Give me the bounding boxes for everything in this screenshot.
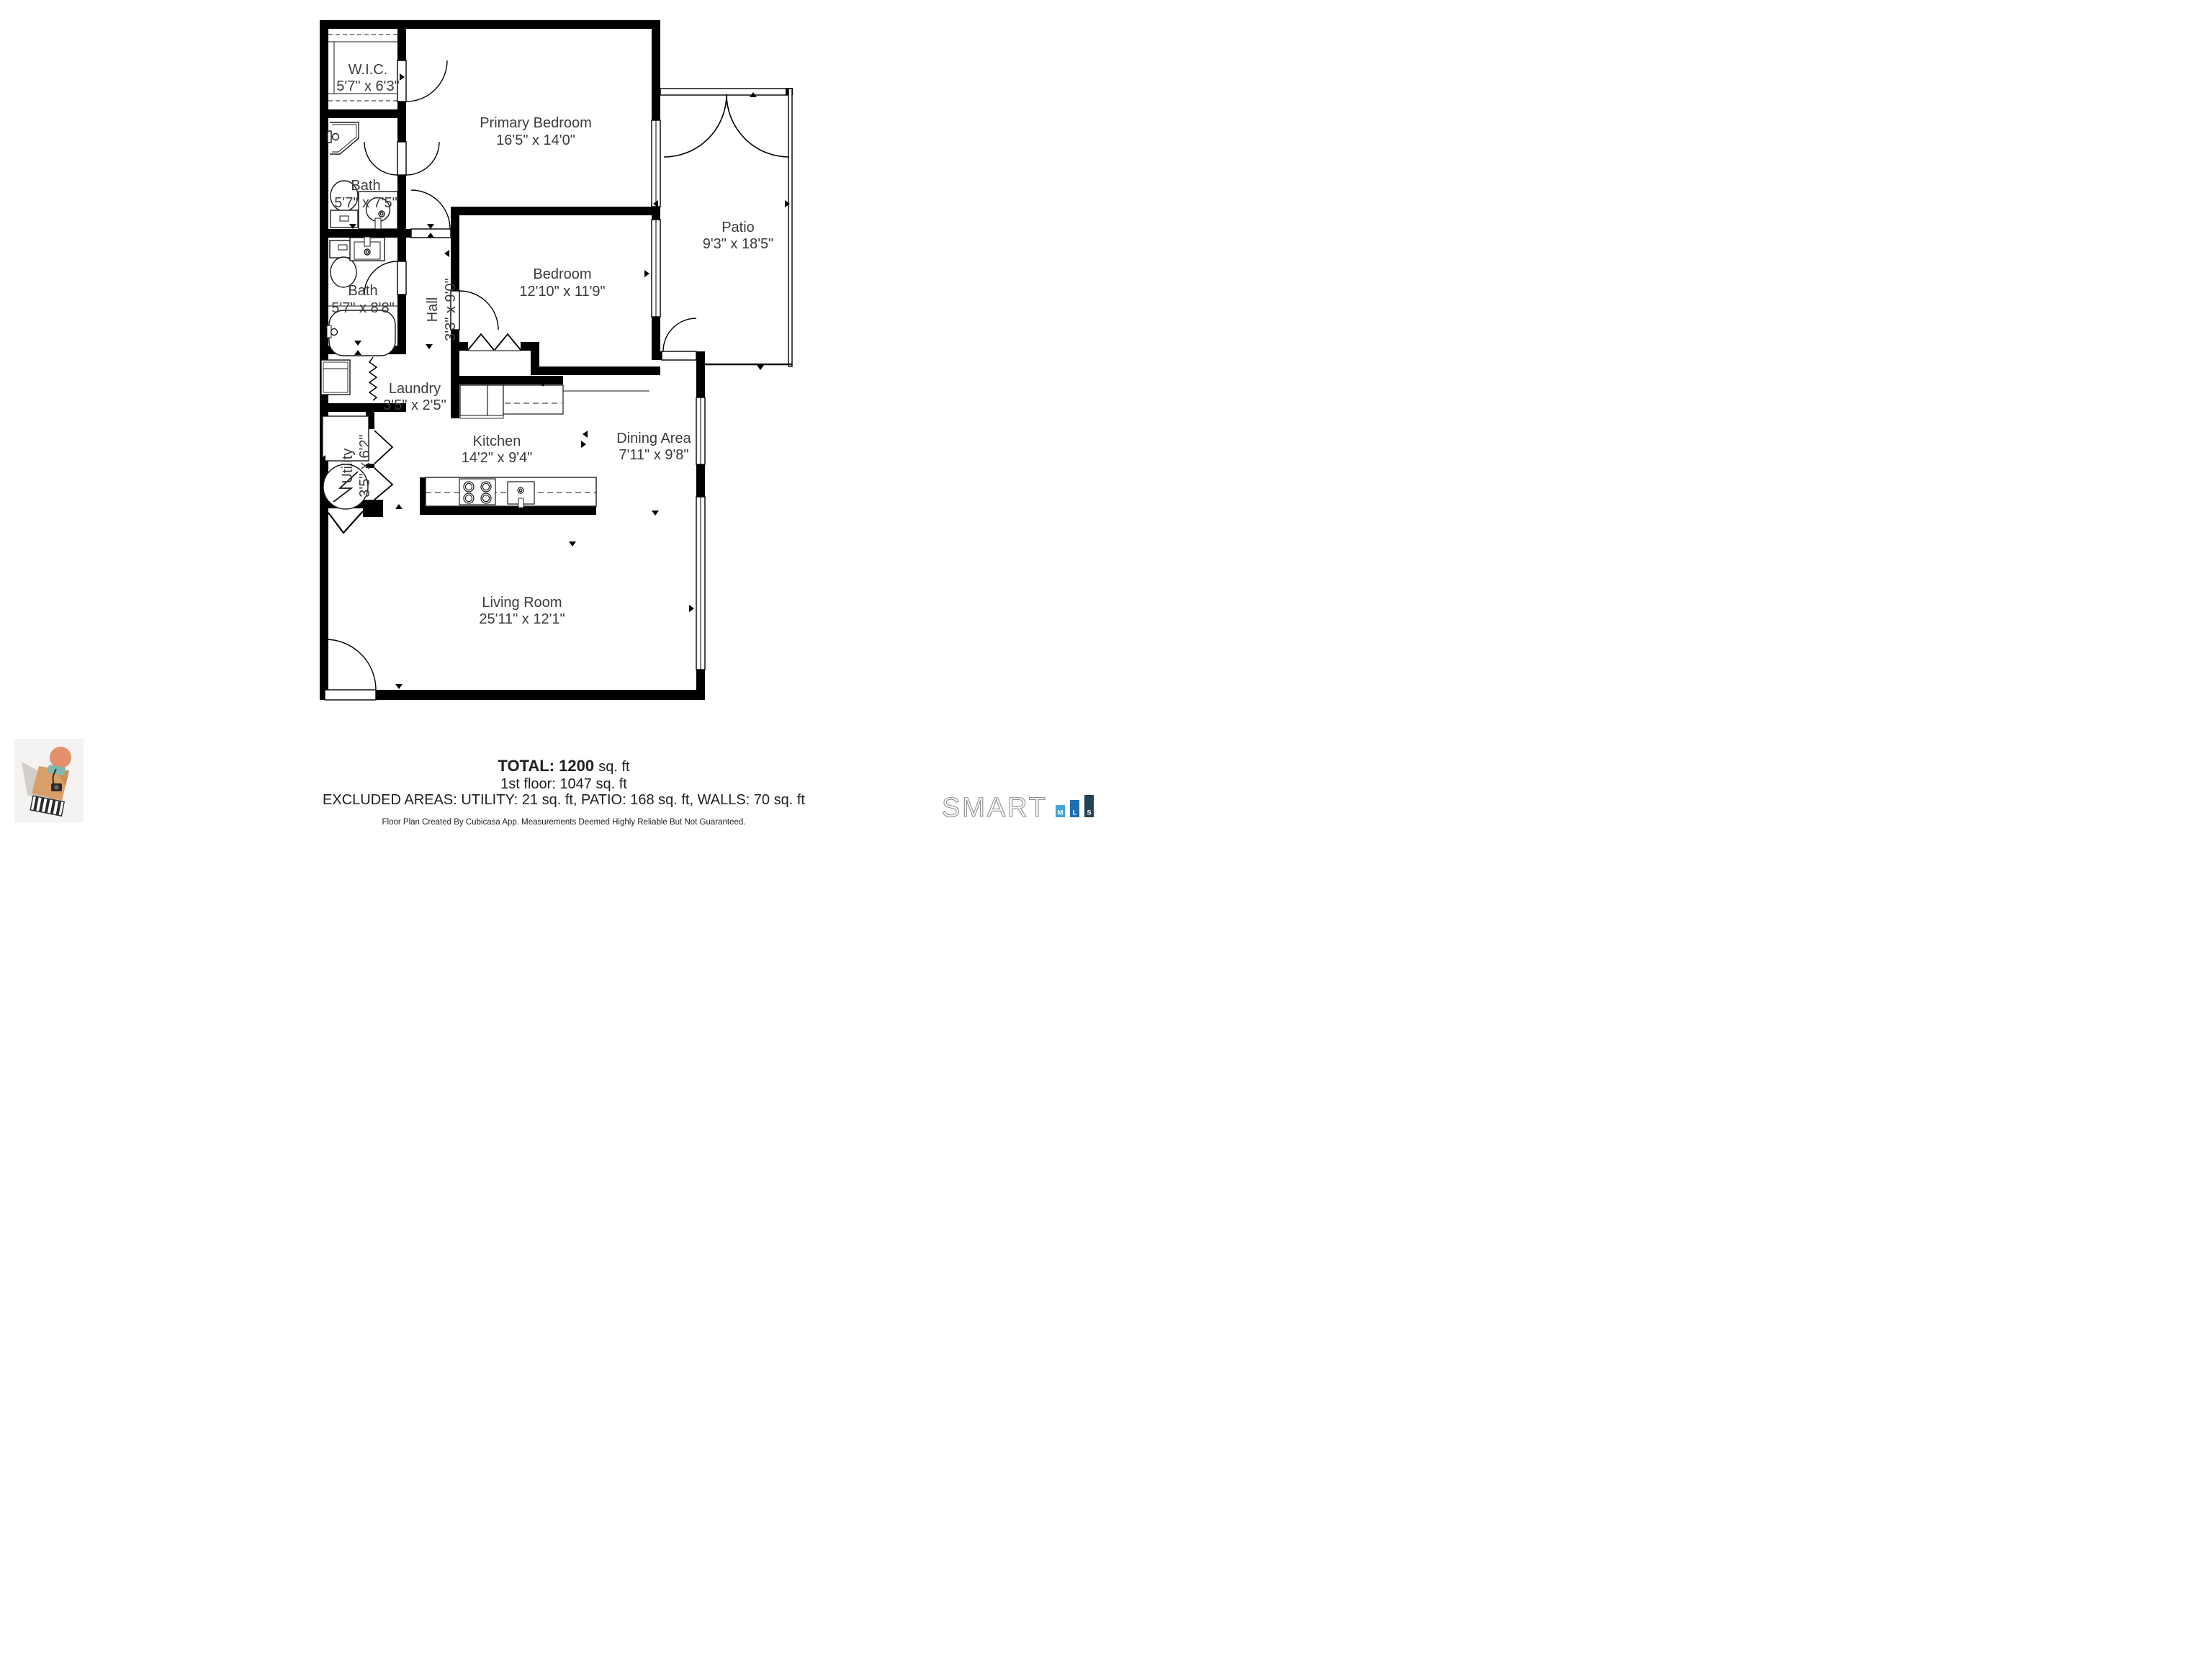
room-label-dining: Dining Area 7'11" x 9'8" <box>616 431 691 463</box>
kitchen-sink-icon <box>508 482 534 508</box>
door-closet-bifold-icon <box>468 334 521 351</box>
cubicasa-logo <box>14 739 84 824</box>
washer-icon <box>321 360 350 395</box>
smart-wordmark: SMART <box>942 793 1048 823</box>
window-primary-bedroom <box>652 120 660 207</box>
window-living <box>696 497 705 670</box>
room-label-kitchen: Kitchen 14'2" x 9'4" <box>462 433 533 466</box>
door-laundry-accordion-icon <box>369 357 377 400</box>
total-label: TOTAL: <box>498 757 554 775</box>
room-label-living: Living Room 25'11" x 12'1" <box>479 595 565 627</box>
svg-text:25'11" x 12'1": 25'11" x 12'1" <box>479 611 565 627</box>
logo-head <box>50 747 71 768</box>
room-label-hall: Hall 3'3" x 9'0" <box>425 278 459 341</box>
fridge-icon <box>503 385 563 414</box>
svg-text:Bath: Bath <box>351 178 380 194</box>
window-bedroom <box>652 220 660 317</box>
sink-bath2-icon <box>350 237 385 261</box>
svg-text:Primary Bedroom: Primary Bedroom <box>480 115 592 131</box>
svg-text:3'5" x 2'5": 3'5" x 2'5" <box>383 397 446 413</box>
door-primary-bedroom-icon <box>411 190 451 238</box>
window-dining <box>696 397 705 464</box>
mls-letter-l: L <box>1073 809 1077 817</box>
stove-icon <box>459 479 495 505</box>
shower-icon <box>328 122 359 154</box>
room-label-patio: Patio 9'3" x 18'5" <box>703 220 774 252</box>
svg-text:5'7" x 8'8": 5'7" x 8'8" <box>331 300 394 316</box>
mls-letter-m: M <box>1058 809 1064 817</box>
svg-text:16'5" x 14'0": 16'5" x 14'0" <box>496 132 575 148</box>
door-wic-icon <box>397 60 447 102</box>
door-entry-icon <box>325 639 376 700</box>
svg-text:Dining Area: Dining Area <box>616 431 691 446</box>
total-value: 1200 <box>559 757 594 775</box>
door-patio-icon <box>662 318 696 360</box>
room-label-bedroom: Bedroom 12'10" x 11'9" <box>519 266 605 300</box>
svg-text:W.I.C.: W.I.C. <box>349 62 387 78</box>
mls-letter-s: S <box>1087 809 1091 817</box>
smartmls-logo: SMART M L S <box>942 792 1102 824</box>
svg-text:Living Room: Living Room <box>482 595 562 611</box>
svg-text:5'7" x 6'3": 5'7" x 6'3" <box>336 78 399 94</box>
door-bath1-icon <box>364 142 439 175</box>
svg-text:12'10" x 11'9": 12'10" x 11'9" <box>519 284 605 300</box>
first-floor-line: 1st floor: 1047 sq. ft <box>22 776 1106 793</box>
total-area-line: TOTAL: 1200 sq. ft <box>22 757 1106 775</box>
svg-text:5'7" x 7'5": 5'7" x 7'5" <box>334 195 397 211</box>
patio-french-doors-icon <box>664 94 789 157</box>
svg-text:3'3" x 9'0": 3'3" x 9'0" <box>443 278 459 341</box>
floorplan-page: { "rooms": [ {"id":"wic","name":"W.I.C."… <box>0 0 1106 829</box>
door-alcove-icon <box>328 511 363 533</box>
floor-plan-svg: W.I.C. 5'7" x 6'3" Bath 5'7" x 7'5" Bath… <box>0 0 1106 742</box>
svg-text:Laundry: Laundry <box>389 381 441 397</box>
door-utility-icon <box>374 431 392 500</box>
total-unit: sq. ft <box>598 759 629 775</box>
svg-text:9'3" x 18'5": 9'3" x 18'5" <box>703 236 774 252</box>
room-label-bath2: Bath 5'7" x 8'8" <box>331 283 394 316</box>
cabinet-icon <box>460 385 503 418</box>
svg-text:Patio: Patio <box>721 220 755 235</box>
svg-text:Utility: Utility <box>340 449 356 484</box>
svg-text:Hall: Hall <box>425 297 441 322</box>
svg-text:Kitchen: Kitchen <box>473 433 521 449</box>
svg-text:14'2" x 9'4": 14'2" x 9'4" <box>462 450 533 466</box>
room-label-laundry: Laundry 3'5" x 2'5" <box>383 381 446 413</box>
svg-text:Bedroom: Bedroom <box>533 266 591 282</box>
room-label-primary-bedroom: Primary Bedroom 16'5" x 14'0" <box>480 115 592 148</box>
svg-text:7'11" x 9'8": 7'11" x 9'8" <box>619 447 688 463</box>
svg-text:3'5" x 6'2": 3'5" x 6'2" <box>357 434 373 497</box>
svg-text:Bath: Bath <box>348 283 377 299</box>
room-label-wic: W.I.C. 5'7" x 6'3" <box>336 62 399 94</box>
